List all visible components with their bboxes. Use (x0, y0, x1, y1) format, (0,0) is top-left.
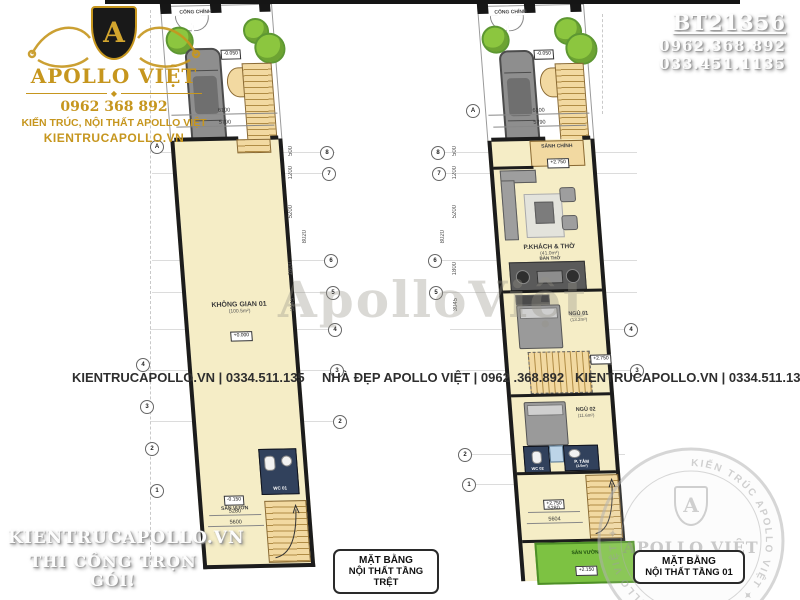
car-roof (507, 78, 533, 116)
room-area: (100.5m²) (187, 307, 291, 315)
grid-bubble: 2 (458, 448, 472, 462)
armchair (561, 215, 578, 230)
grid-bubble: 4 (624, 323, 638, 337)
company-logo: A APOLLO VIỆT ◆ 0962 368 892 KIẾN TRÚC, … (14, 4, 214, 145)
level-marker: -0.050 (533, 49, 554, 59)
tree-icon (253, 32, 286, 64)
sofa (500, 180, 519, 240)
wall (270, 136, 279, 140)
column (477, 3, 489, 14)
wc-label: WC 01 (262, 485, 298, 491)
sink (281, 455, 293, 466)
dim-bottom-inner: 5280 (547, 505, 560, 511)
dim-bottom-outer: 5600 (229, 519, 242, 525)
room-area: (11.6m²) (560, 412, 611, 418)
bath-label: P. TẮM (3.5m²) (565, 459, 599, 469)
grid-bubble: 2 (333, 415, 347, 429)
bath-area: (3.5m²) (565, 464, 598, 469)
grid-bubble: 8 (431, 146, 445, 160)
lobby-label: SẢNH CHÍNH (531, 143, 583, 150)
grid-bubble: 1 (462, 478, 476, 492)
room-label-main: KHÔNG GIAN 01 (100.5m²) (187, 300, 292, 315)
footer-slogan: KIENTRUCAPOLLO.VN THI CÔNG TRỌN GÓI! (8, 528, 218, 590)
center-watermark: ApolloViệt (278, 270, 588, 329)
footer-website: KIENTRUCAPOLLO.VN (8, 528, 218, 548)
dim-top-inner: 5790 (533, 120, 546, 126)
gate-swing-arc (508, 15, 525, 31)
garage-court: CỔNG CHÍNH -0.050 6100 5790 (477, 4, 595, 143)
toilet (531, 451, 542, 464)
coffee-table (534, 201, 555, 223)
dim-bottom-outer: 5604 (548, 516, 561, 522)
tree-icon (564, 33, 598, 66)
project-code: BT21356 (659, 10, 786, 35)
plan-title-line1: MẶT BẰNG (339, 555, 433, 566)
dim-side: 500 (288, 146, 294, 156)
watermark-band-center: NHÀ ĐẸP APOLLO VIỆT | 0962 .368.892 (322, 370, 564, 385)
closet (549, 445, 564, 462)
logo-rule: ◆ (26, 89, 202, 98)
level-marker: +2.750 (590, 354, 612, 364)
plan-title-line2: NỘI THẤT TẦNG 01 (639, 567, 739, 578)
grid-bubble: 7 (432, 167, 446, 181)
plan-title-line2: NỘI THẤT TẦNG TRỆT (339, 566, 433, 588)
dim-side: 5200 (452, 205, 458, 218)
toilet (264, 456, 276, 471)
project-phone-2: 033.451.1135 (659, 55, 786, 73)
stair-run (264, 500, 311, 563)
logo-website: KIENTRUCAPOLLO.VN (14, 131, 214, 145)
stair-arrow (265, 501, 310, 562)
plan-title-line1: MẶT BẰNG (639, 556, 739, 567)
stamp-shield: A (596, 486, 786, 526)
lobby-landing: SẢNH CHÍNH +2.750 (529, 140, 585, 167)
project-info: BT21356 0962.368.892 033.451.1135 (659, 10, 786, 73)
project-phone-1: 0962.368.892 (659, 37, 786, 55)
grid-bubble: 2 (145, 442, 159, 456)
wall (511, 392, 610, 397)
stamp-letter: A (674, 486, 708, 526)
watermark-band-left: KIENTRUCAPOLLO.VN | 0334.511.135 (72, 370, 305, 385)
grid-bubble: 3 (140, 400, 154, 414)
grid-bubble: 6 (428, 254, 442, 268)
grid-bubble: 7 (322, 167, 336, 181)
grid-bubble: 6 (324, 254, 338, 268)
dim-side: 500 (452, 146, 458, 156)
watermark-band-right: KIENTRUCAPOLLO.VN | 0334.511.135 (575, 370, 800, 385)
dim-top-outer: 6100 (532, 108, 545, 114)
left-plan-title-box: MẶT BẰNG NỘI THẤT TẦNG TRỆT (333, 549, 439, 594)
right-plan-title-box: MẶT BẰNG NỘI THẤT TẦNG 01 (633, 550, 745, 584)
dim-bottom-inner: 5280 (229, 508, 242, 514)
level-marker: +0.000 (230, 331, 252, 341)
logo-letter: A (93, 16, 135, 49)
dim-top-outer: 6100 (218, 108, 231, 114)
dim-side: 1200 (452, 166, 458, 179)
extension-line (602, 14, 603, 114)
dim-side-total: 8020 (302, 230, 308, 243)
wc-room: WC 02 (523, 446, 551, 475)
dim-side: 1200 (288, 166, 294, 179)
grid-bubble: 1 (150, 484, 164, 498)
building-body: KHÔNG GIAN 01 (100.5m²) +0.000 WC 01 -0.… (170, 138, 315, 569)
armchair (559, 187, 576, 202)
dim-top-inner: 5790 (219, 120, 232, 126)
pillow (527, 404, 564, 416)
level-marker: -0.050 (220, 49, 241, 59)
grid-bubble: A (466, 104, 480, 118)
dim-side: 5200 (288, 205, 294, 218)
wc-label: WC 02 (525, 466, 549, 471)
logo-phone: 0962 368 892 (14, 99, 214, 115)
bath-room: P. TẮM (3.5m²) (563, 445, 600, 472)
logo-tagline: KIẾN TRÚC, NỘI THẤT APOLLO VIỆT (14, 117, 214, 129)
sink (568, 449, 581, 458)
stair-run (236, 139, 271, 154)
floor-plan-sheet: CỔNG CHÍNH -0.050 6100 5790 KHÔNG GIAN 0… (0, 0, 800, 600)
car-windshield (504, 72, 531, 74)
level-marker: +2.150 (575, 566, 597, 576)
level-marker: -0.150 (224, 495, 245, 505)
wc-room: WC 01 (258, 448, 300, 495)
level-marker: +2.750 (547, 158, 569, 168)
grid-bubble: 8 (320, 146, 334, 160)
dim-side-total: 8020 (440, 230, 446, 243)
footer-tagline: THI CÔNG TRỌN GÓI! (8, 552, 218, 590)
room-label-bed2: NGỦ 02 (11.6m²) (560, 406, 612, 418)
